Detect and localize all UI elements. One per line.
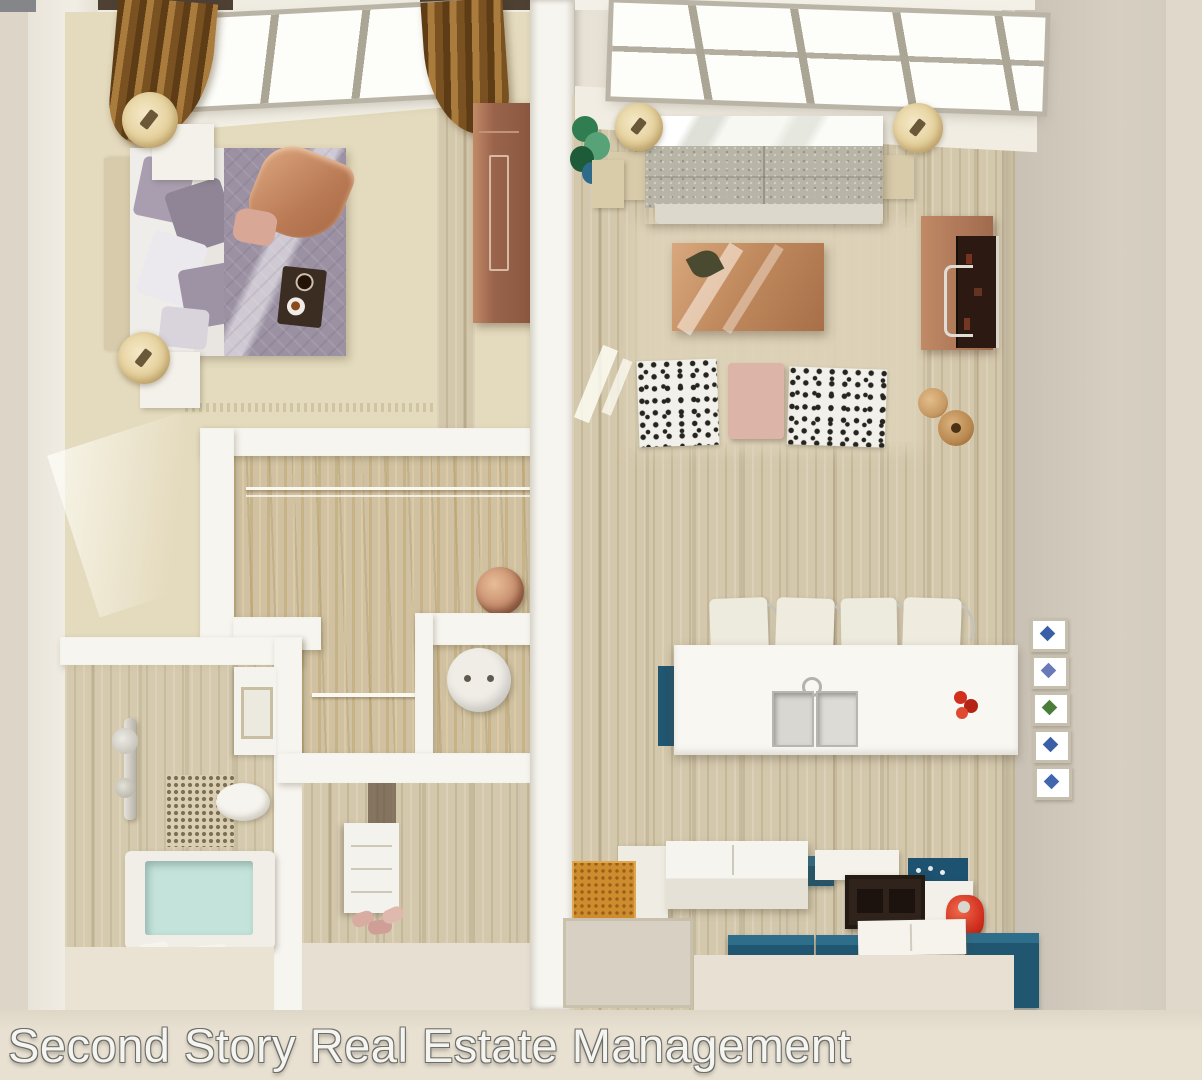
bathroom-wall-top: [60, 637, 302, 665]
coffee-cup: [297, 274, 312, 289]
bedroom-rug-fringe: [185, 403, 435, 412]
table-lamp: [118, 332, 170, 384]
vase: [938, 410, 974, 446]
armchair: [787, 366, 888, 447]
closet-rod: [246, 495, 534, 497]
hall-dark-niche: [368, 783, 396, 825]
sofa-front-edge: [655, 204, 883, 224]
top-left-gray-strip: [0, 0, 36, 12]
hall-cabinet: [344, 823, 399, 913]
sofa-cushions: [645, 146, 883, 208]
oven-door: [889, 889, 915, 913]
sofa-back-console: [645, 116, 883, 150]
center-wall: [530, 0, 574, 1010]
closet-wall-left: [200, 428, 234, 655]
watermark-text: Second Story Real Estate Management: [8, 1018, 851, 1073]
closet-wall-bottom: [277, 753, 544, 783]
lamp-slit: [909, 118, 927, 137]
tile-art: [1043, 737, 1059, 753]
sofa-seam: [645, 176, 883, 178]
entry-doormat: [572, 861, 636, 921]
kitchen-island: [674, 645, 1018, 755]
entry-mat: [563, 918, 693, 1008]
hall-floor: [302, 783, 530, 943]
living-skylight: [610, 2, 1045, 111]
drawer-line: [351, 868, 393, 870]
washer: [447, 648, 511, 712]
drawer-line: [351, 845, 393, 847]
floor-lamp: [615, 103, 663, 151]
wicker-ball: [476, 567, 524, 615]
wall-tile: [1031, 655, 1069, 689]
kitchen-counter-white: [666, 841, 808, 909]
lamp-slit: [140, 109, 160, 130]
tile-art: [1042, 700, 1058, 716]
kitchen-counter-slab: [858, 919, 967, 956]
wall-tile: [1030, 618, 1068, 652]
oven-door: [857, 889, 883, 913]
counter-seam: [732, 845, 734, 875]
stove-dot: [916, 868, 921, 873]
kitchen-bottom-floor: [694, 955, 1014, 1010]
wardrobe: [473, 103, 537, 323]
drawer-line: [351, 891, 393, 893]
bathroom-hall-wall: [274, 637, 302, 1013]
tile-art: [1041, 663, 1057, 679]
tile-art: [1040, 626, 1056, 642]
closet-rod-low: [312, 693, 420, 697]
alcove-wall-top: [415, 613, 546, 645]
floorplan-render: Second Story Real Estate Management: [0, 0, 1202, 1080]
kettle-lid: [958, 901, 970, 913]
ottoman: [728, 363, 784, 439]
washer-knob: [487, 675, 494, 682]
table-lamp: [122, 92, 178, 148]
armchair: [637, 359, 720, 448]
sofa: [645, 116, 883, 224]
tile-art: [1044, 774, 1060, 790]
sink-basin: [241, 687, 273, 739]
counter-seam: [910, 924, 912, 951]
side-table: [592, 160, 624, 208]
headboard: [104, 158, 132, 350]
sink-well: [816, 691, 858, 747]
wall-tile: [1032, 692, 1070, 726]
bedroom-wood-border: [437, 95, 475, 455]
wall-tile: [1033, 729, 1071, 763]
shower-knob: [115, 778, 135, 798]
croissant: [291, 301, 301, 311]
bathroom-entry-floor: [65, 947, 274, 1010]
console-handle: [944, 265, 973, 337]
sink-vanity: [234, 667, 276, 755]
stove-dot: [928, 866, 933, 871]
floor-lamp: [893, 103, 943, 153]
wardrobe-seam: [479, 131, 519, 133]
shower-head: [112, 728, 138, 754]
lamp-slit: [134, 348, 152, 368]
bathtub-water: [145, 861, 253, 935]
wall-tile: [1034, 766, 1072, 800]
tv-glint: [966, 254, 972, 264]
wardrobe-handle: [489, 155, 509, 271]
breakfast-tray: [277, 266, 327, 328]
lamp-slit: [630, 117, 647, 135]
sink-well: [772, 691, 814, 747]
closet-wall-top: [200, 428, 546, 456]
vase-mouth: [951, 423, 961, 433]
hall-entry-floor: [302, 943, 530, 1010]
alcove-wall-left: [415, 613, 433, 759]
red-flowers: [952, 689, 986, 723]
closet-rod: [246, 487, 534, 490]
stove-dot: [940, 870, 945, 875]
washer-knob: [464, 675, 471, 682]
flower: [956, 707, 968, 719]
right-outer-edge: [1166, 0, 1202, 1080]
bathtub: [125, 851, 275, 949]
left-outer-edge: [0, 0, 30, 1080]
plate: [286, 297, 306, 317]
tv-glint: [974, 288, 982, 296]
toilet: [216, 783, 270, 821]
coffee-table: [672, 243, 824, 331]
